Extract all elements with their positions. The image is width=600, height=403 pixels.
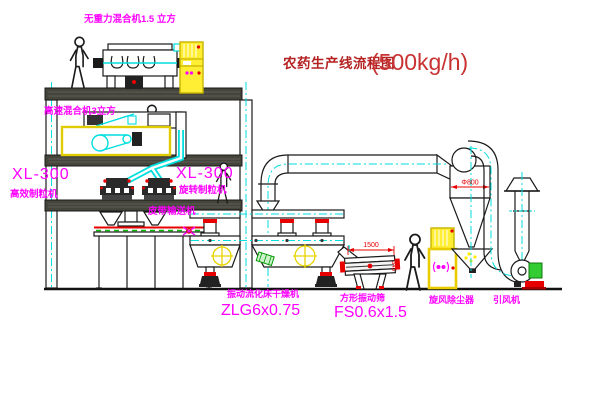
label-dryer-model: ZLG6x0.75: [221, 302, 300, 319]
drawing-title-capacity: (500kg/h): [371, 49, 468, 75]
label-granulator-mid-name: 旋转制粒机: [178, 184, 227, 196]
label-high-speed-mixer: 高速混合机3立方: [44, 105, 116, 117]
cad-drawing-canvas: 无重力混合机1.5 立方 高速混合机3立方 XL-300 高效制粒机 XL-30…: [0, 0, 600, 403]
label-granulator-mid-model: XL-300: [176, 165, 234, 182]
dim-sieve-side: 345: [390, 261, 396, 272]
label-sieve-model: FS0.6x1.5: [334, 304, 407, 321]
label-belt-conveyor: 皮带输送机: [147, 205, 196, 217]
control-cabinet-ground: [429, 228, 456, 288]
label-fan: 引风机: [493, 294, 520, 305]
label-cyclone: 旋风除尘器: [428, 294, 475, 305]
dim-sieve-length: 1500: [363, 242, 379, 249]
induced-draft-fan: [511, 260, 546, 290]
gravity-mixer: [93, 44, 187, 89]
granulator-left: [100, 178, 134, 200]
label-gravity-mixer: 无重力混合机1.5 立方: [83, 13, 176, 25]
label-dryer-name: 振动流化床干燥机: [227, 288, 299, 299]
control-cabinet-top: [180, 42, 203, 93]
granulator-right: [142, 178, 176, 200]
label-granulator-left-model: XL-300: [12, 166, 70, 183]
label-granulator-left-name: 高效制粒机: [10, 188, 58, 200]
dim-cyclone-diameter: Φ800: [461, 180, 478, 187]
label-sieve-name: 方形振动筛: [340, 292, 385, 303]
